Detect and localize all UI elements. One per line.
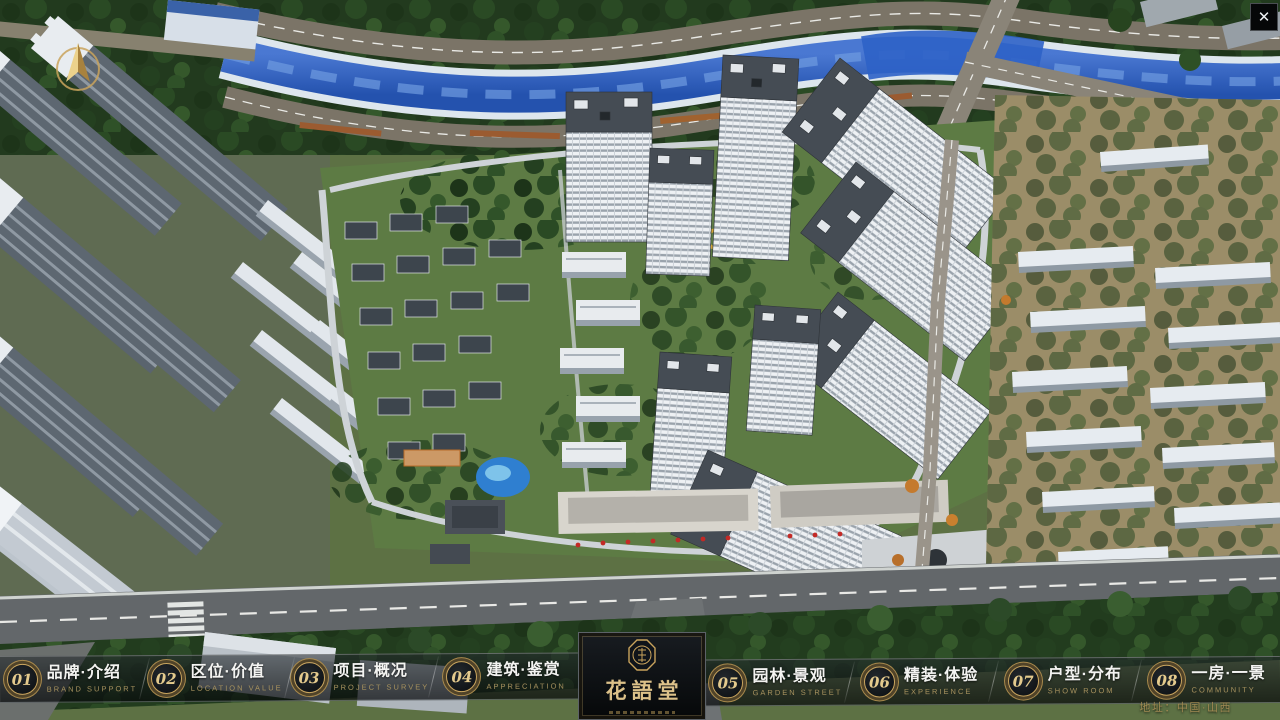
close-button[interactable]: ✕ [1250,3,1278,31]
nav-item-subtitle: GARDEN STREET [753,688,843,696]
nav-item-project-overview[interactable]: 03 项目·概况PROJECT SURVEY [289,654,433,700]
nav-number-badge: 04 [446,661,477,692]
nav-item-number: 01 [12,670,33,688]
nav-item-subtitle: EXPERIENCE [904,688,972,696]
nav-item-number: 05 [718,674,739,692]
nav-item-floorplan-distribution[interactable]: 07 户型·分布SHOW ROOM [993,658,1136,704]
nav-number-badge: 03 [293,662,324,693]
compass-north-icon [48,36,108,100]
nav-number-badge: 02 [151,663,182,694]
nav-item-number: 02 [156,669,177,687]
sales-presentation-app: ✕ 01 品牌·介绍BRAND SUPPORT 02 区位·价值LOCATION… [0,0,1280,720]
logo-subtext [609,711,675,714]
nav-item-label: 一房·一景 [1191,666,1265,682]
nav-item-label: 建筑·鉴赏 [486,662,560,678]
nav-number-badge: 01 [7,664,38,695]
nav-item-location-value[interactable]: 02 区位·价值LOCATION VALUE [145,655,289,701]
nav-item-label: 户型·分布 [1048,667,1122,683]
nav-number-badge: 08 [1151,665,1182,696]
nav-item-interior-experience[interactable]: 06 精装·体验EXPERIENCE [850,659,993,705]
nav-item-subtitle: BRAND SUPPORT [47,685,138,693]
project-logo[interactable]: 花語堂 [578,632,706,720]
nav-item-label: 项目·概况 [333,663,407,679]
nav-item-label: 精装·体验 [904,668,978,684]
nav-number-badge: 06 [864,666,895,697]
nav-item-label: 园林·景观 [752,669,826,685]
nav-number-badge: 05 [712,667,743,698]
project-address: 地址：中国·山西 [1139,699,1232,715]
nav-item-number: 06 [869,673,890,691]
nav-item-label: 区位·价值 [191,664,265,680]
nav-item-subtitle: SHOW ROOM [1048,687,1115,695]
nav-item-landscape[interactable]: 05 园林·景观GARDEN STREET [706,660,849,706]
nav-item-subtitle: APPRECIATION [486,682,565,690]
nav-number-badge: 07 [1008,665,1039,696]
logo-name: 花語堂 [601,675,684,705]
nav-item-subtitle: COMMUNITY [1191,686,1255,694]
nav-item-number: 07 [1013,672,1034,690]
nav-item-label: 品牌·介绍 [47,665,121,681]
nav-item-number: 08 [1156,671,1177,689]
nav-item-brand-intro[interactable]: 01 品牌·介绍BRAND SUPPORT [0,656,144,702]
nav-item-room-view[interactable]: 08 一房·一景COMMUNITY [1137,657,1280,703]
nav-group-left: 01 品牌·介绍BRAND SUPPORT 02 区位·价值LOCATION V… [0,652,578,703]
nav-item-architecture[interactable]: 04 建筑·鉴赏APPRECIATION [434,653,578,699]
logo-seal-icon [625,638,659,672]
nav-item-subtitle: LOCATION VALUE [191,684,283,692]
nav-item-number: 03 [299,669,320,687]
nav-item-subtitle: PROJECT SURVEY [334,683,430,691]
nav-item-number: 04 [451,668,472,686]
aerial-masterplan-render [0,0,1280,720]
